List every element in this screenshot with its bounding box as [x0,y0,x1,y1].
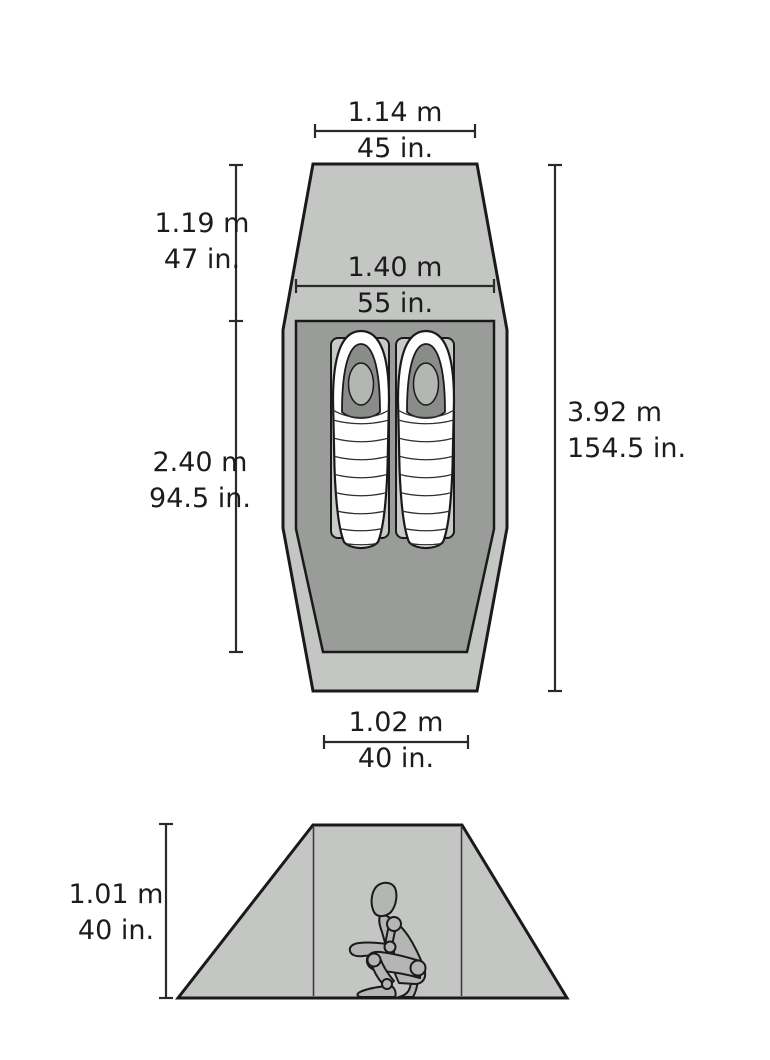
tent-dimension-diagram: 1.14 m 45 in. 1.19 m 47 in. 1.40 m 55 in… [0,0,770,1060]
label-inner-width-metric: 1.40 m [315,250,475,286]
label-inner-width-imperial: 55 in. [315,286,475,322]
person-ankle-joint [382,979,392,989]
person-knee-joint [368,954,381,967]
label-inner-width: 1.40 m 55 in. [315,250,475,322]
label-vestibule-depth: 1.19 m 47 in. [122,206,282,278]
label-vestibule-depth-metric: 1.19 m [122,206,282,242]
label-foot-width-metric: 1.02 m [316,705,476,741]
person-shoulder-joint [387,917,401,931]
sleeping-bag-right [398,331,454,548]
person-head [372,883,397,916]
label-total-length-imperial: 154.5 in. [567,431,767,467]
person-hip-joint [411,961,426,976]
tent-cross-section [178,825,567,998]
label-top-width-metric: 1.14 m [315,95,475,131]
label-peak-height-metric: 1.01 m [36,877,196,913]
label-top-width: 1.14 m 45 in. [315,95,475,167]
label-inner-length: 2.40 m 94.5 in. [120,445,280,517]
person-elbow-joint [385,942,396,953]
label-total-length: 3.92 m 154.5 in. [567,395,767,467]
label-peak-height-imperial: 40 in. [36,913,196,949]
label-foot-width: 1.02 m 40 in. [316,705,476,777]
sleeping-bag-left [333,331,389,548]
label-vestibule-depth-imperial: 47 in. [122,242,282,278]
label-foot-width-imperial: 40 in. [316,741,476,777]
label-inner-length-metric: 2.40 m [120,445,280,481]
label-inner-length-imperial: 94.5 in. [120,481,280,517]
label-total-length-metric: 3.92 m [567,395,767,431]
label-top-width-imperial: 45 in. [315,131,475,167]
label-peak-height: 1.01 m 40 in. [36,877,196,949]
dimension-line-total-length [548,165,562,691]
